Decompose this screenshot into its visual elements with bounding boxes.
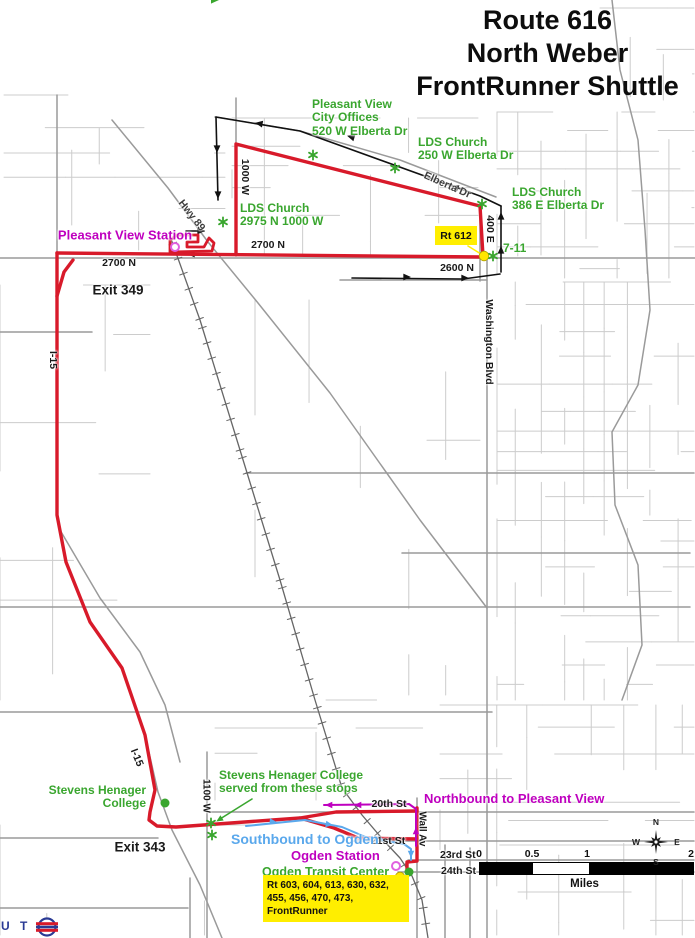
title-line-3: FrontRunner Shuttle	[400, 70, 695, 103]
uta-logo: U T A	[0, 915, 70, 938]
transit-routes-line-3: FrontRunner	[267, 905, 405, 918]
compass-e: E	[674, 837, 680, 847]
rt612-label: Rt 612	[440, 230, 472, 242]
compass-n: N	[653, 817, 659, 827]
map-title: Route 616 North Weber FrontRunner Shuttl…	[400, 4, 695, 103]
uta-emblem-icon	[30, 915, 70, 938]
rt612-callout: Rt 612	[435, 226, 477, 245]
route-616-line	[57, 144, 483, 872]
transit-center-routes-callout: Rt 603, 604, 613, 630, 632, 455, 456, 47…	[263, 875, 409, 922]
stop-markers	[161, 150, 497, 881]
scale-tick-05: 0.5	[525, 848, 540, 860]
compass-w: W	[632, 837, 640, 847]
scale-tick-0: 0	[476, 848, 482, 860]
transit-routes-line-1: Rt 603, 604, 613, 630, 632,	[267, 879, 405, 892]
scale-unit-label: Miles	[570, 878, 599, 890]
scale-tick-2: 2	[688, 848, 694, 860]
compass-s: S	[653, 857, 659, 867]
street-grid-minor	[0, 8, 694, 935]
route-map-page: Pleasant View StationExit 349Exit 343270…	[0, 0, 695, 938]
transit-routes-line-2: 455, 456, 470, 473,	[267, 892, 405, 905]
compass-rose: N E S W	[628, 814, 684, 870]
directional-overlays	[211, 0, 481, 860]
scale-tick-1: 1	[584, 848, 590, 860]
title-line-1: Route 616	[400, 4, 695, 37]
title-line-2: North Weber	[400, 37, 695, 70]
map-canvas	[0, 0, 695, 938]
street-grid-major	[0, 0, 695, 938]
